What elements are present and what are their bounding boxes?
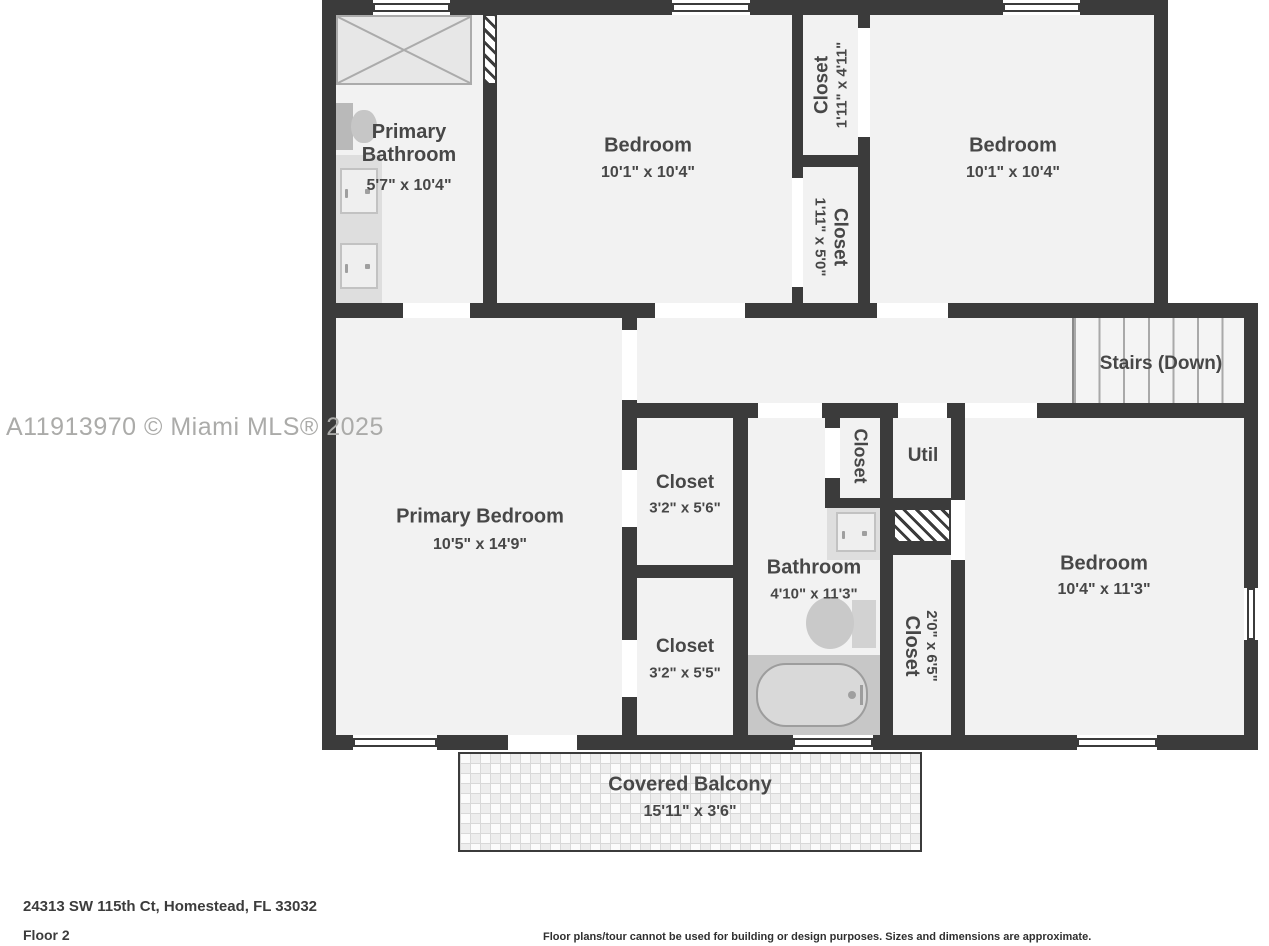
door-opening	[877, 303, 948, 318]
bedroom-bottom-right-label: Bedroom	[1060, 553, 1148, 576]
door-opening	[622, 470, 637, 527]
util-label: Util	[908, 445, 939, 467]
closet-lower-dims: 3'2" x 5'5"	[649, 664, 720, 681]
door-opening	[858, 28, 870, 137]
wall	[893, 543, 951, 555]
wall	[825, 498, 951, 508]
room-bedroom-bottom-right	[965, 418, 1244, 735]
bedroom-top-right-dims: 10'1" x 10'4"	[966, 164, 1060, 182]
closet-bath-label: Closet	[850, 428, 871, 483]
primary-bedroom-dims: 10'5" x 14'9"	[433, 536, 527, 554]
bathtub-icon	[748, 655, 880, 735]
window	[373, 0, 450, 15]
sink-icon	[340, 243, 378, 289]
wall	[637, 565, 733, 578]
mls-watermark: A11913970 © Miami MLS® 2025	[6, 413, 384, 442]
closet-top-b-label: Closet 1'11" x 5'0"	[811, 198, 850, 277]
door-opening	[898, 403, 947, 418]
bathroom-label: Bathroom	[767, 557, 861, 580]
wall	[322, 0, 336, 750]
wall	[733, 403, 748, 750]
wall	[1154, 0, 1168, 318]
window	[353, 735, 437, 750]
door-opening	[965, 403, 1037, 418]
wall	[1244, 303, 1258, 750]
door-opening	[951, 500, 965, 560]
door-opening	[508, 735, 577, 750]
disclaimer-text: Floor plans/tour cannot be used for buil…	[543, 931, 1091, 943]
door-opening	[758, 403, 822, 418]
window	[793, 735, 873, 750]
primary-bathroom-dims: 5'7" x 10'4"	[366, 177, 451, 195]
primary-bathroom-label: Primary Bathroom	[329, 121, 489, 167]
closet-dims: 1'11" x 5'0"	[811, 198, 828, 277]
balcony-label: Covered Balcony	[608, 774, 771, 797]
shower-icon	[336, 15, 472, 85]
primary-bedroom-label: Primary Bedroom	[396, 506, 564, 529]
bedroom-top-right-label: Bedroom	[969, 135, 1057, 158]
floor-number: Floor 2	[23, 927, 70, 943]
toilet-icon	[852, 600, 876, 648]
bathroom-dims: 4'10" x 11'3"	[770, 585, 857, 602]
closet-top-a-label: Closet 1'11" x 4'11"	[811, 42, 850, 128]
door-opening	[403, 303, 470, 318]
stairs-label: Stairs (Down)	[1100, 353, 1222, 375]
property-address: 24313 SW 115th Ct, Homestead, FL 33032	[23, 898, 317, 915]
room-bedroom-top-right	[870, 14, 1154, 305]
closet-upper-dims: 3'2" x 5'6"	[649, 499, 720, 516]
closet-dims: 2'0" x 6'5"	[923, 610, 940, 681]
closet-name: Closet	[811, 42, 833, 128]
closet-name: Closet	[829, 198, 851, 277]
closet-lower-label: Closet	[656, 636, 714, 658]
window	[672, 0, 750, 15]
door-opening	[792, 178, 803, 287]
window	[1077, 735, 1157, 750]
bedroom-top-middle-label: Bedroom	[604, 135, 692, 158]
window	[1003, 0, 1080, 15]
door-opening	[655, 303, 745, 318]
bedroom-bottom-right-dims: 10'4" x 11'3"	[1057, 581, 1150, 599]
closet-name: Closet	[900, 610, 923, 681]
hatched-wall-icon	[483, 14, 497, 85]
balcony-dims: 15'11" x 3'6"	[643, 803, 736, 821]
sink-icon	[836, 512, 876, 552]
wall	[792, 155, 870, 167]
closet-name: Closet	[850, 428, 871, 483]
door-opening	[622, 640, 637, 697]
closet-upper-label: Closet	[656, 472, 714, 494]
closet-dims: 1'11" x 4'11"	[833, 42, 850, 128]
hatched-chase-icon	[893, 508, 951, 543]
window	[1244, 588, 1258, 640]
closet-hall-label: 2'0" x 6'5" Closet	[900, 610, 940, 681]
floor-plan: Stairs (Down) Covered Balcony 15'11" x 3…	[0, 0, 1269, 946]
wall	[883, 415, 893, 498]
toilet-bowl-icon	[806, 597, 854, 649]
room-bedroom-top-middle	[497, 14, 792, 305]
wall	[951, 403, 965, 750]
door-opening	[825, 428, 840, 478]
door-opening	[622, 330, 637, 400]
bedroom-top-middle-dims: 10'1" x 10'4"	[601, 164, 695, 182]
hallway	[637, 318, 1072, 403]
